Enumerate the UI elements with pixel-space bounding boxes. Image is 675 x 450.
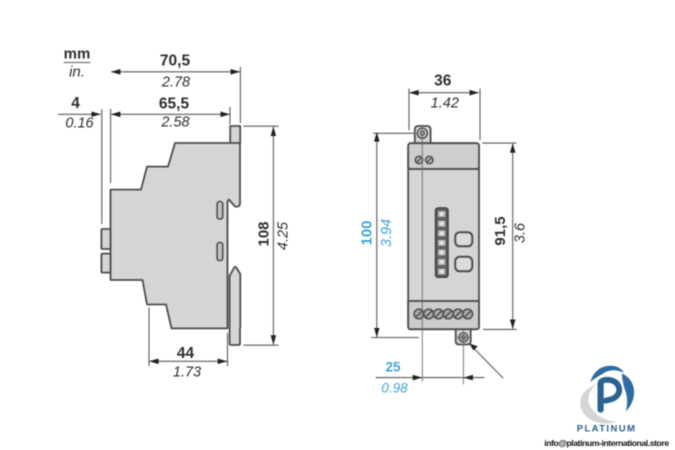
svg-text:65,5: 65,5	[159, 96, 190, 113]
svg-text:2.58: 2.58	[160, 115, 189, 131]
svg-text:mm: mm	[64, 46, 91, 63]
svg-text:in.: in.	[69, 64, 85, 81]
svg-text:3.6: 3.6	[513, 222, 529, 243]
svg-text:info@platinum-international.st: info@platinum-international.store	[544, 438, 669, 448]
svg-text:1.73: 1.73	[173, 365, 201, 381]
svg-text:3.94: 3.94	[379, 219, 395, 247]
svg-text:0.16: 0.16	[65, 116, 94, 132]
svg-text:25: 25	[385, 360, 401, 375]
svg-text:70,5: 70,5	[160, 53, 191, 70]
svg-text:44: 44	[177, 345, 195, 362]
svg-text:1.42: 1.42	[431, 96, 459, 112]
svg-text:91,5: 91,5	[492, 216, 509, 245]
svg-text:4: 4	[71, 95, 80, 112]
svg-text:4.25: 4.25	[276, 221, 292, 250]
svg-text:2.78: 2.78	[161, 75, 190, 91]
svg-text:36: 36	[434, 73, 452, 90]
svg-text:100: 100	[359, 220, 376, 245]
svg-text:0.98: 0.98	[381, 381, 408, 396]
svg-text:PLATINUM: PLATINUM	[577, 424, 637, 435]
svg-text:108: 108	[256, 221, 273, 246]
